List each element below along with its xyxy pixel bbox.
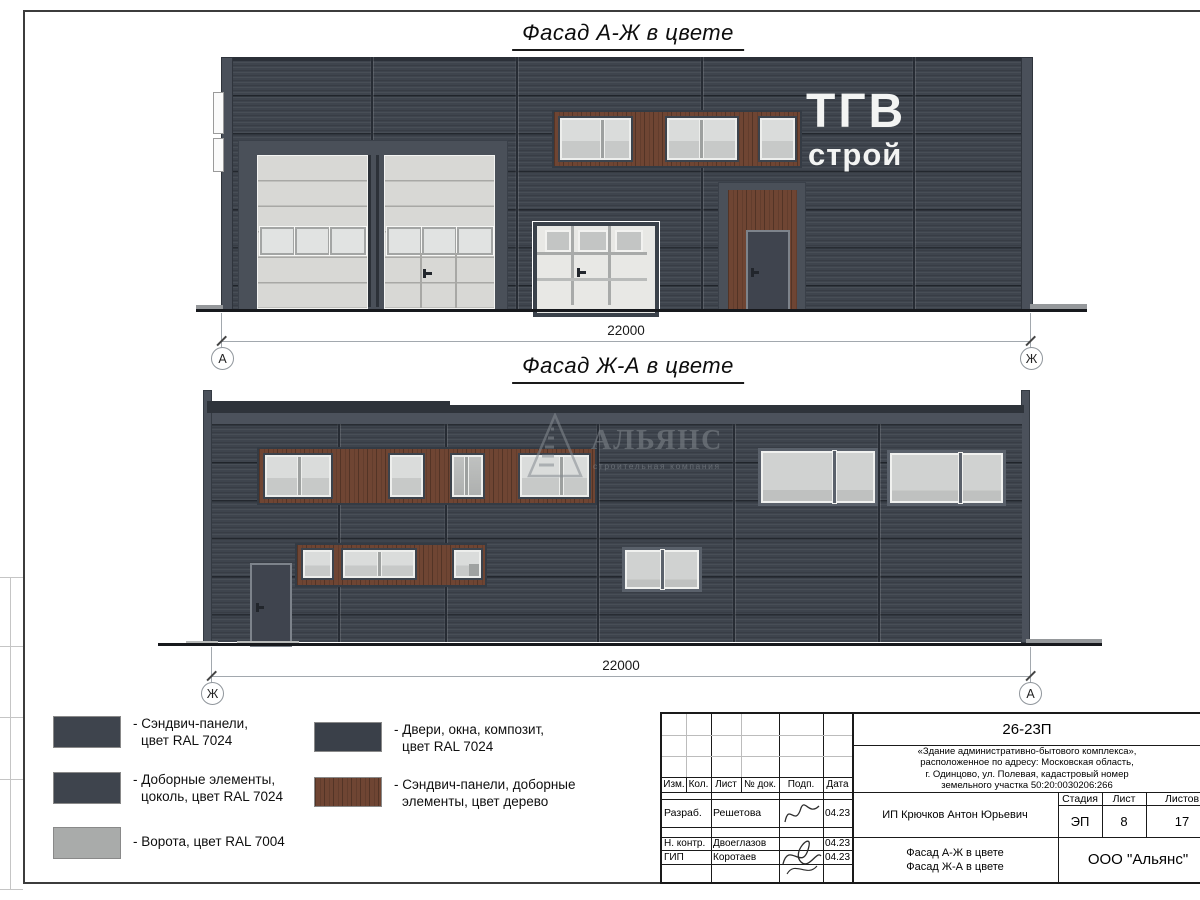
legend-swatch-sandwich bbox=[53, 716, 121, 748]
stamp-name: Коротаев bbox=[713, 850, 779, 864]
ground-line-1 bbox=[196, 309, 1087, 312]
window-mullion bbox=[700, 120, 703, 158]
window bbox=[341, 548, 417, 580]
stamp-name: Решетова bbox=[713, 799, 779, 827]
legend-label: - Сэндвич-панели, цвет RAL 7024 bbox=[133, 715, 248, 749]
window bbox=[301, 548, 334, 580]
gate-divider-groove bbox=[376, 155, 379, 307]
entrance-rail bbox=[537, 278, 647, 281]
extension-line bbox=[211, 647, 212, 687]
window bbox=[758, 116, 797, 162]
stage-value: ЭП bbox=[1058, 805, 1102, 837]
entrance-transom-sash bbox=[545, 230, 571, 252]
stamp-date: 04.23 bbox=[823, 799, 852, 827]
subject-line: Фасад А-Ж в цвете bbox=[906, 846, 1004, 860]
axis-letter: Ж bbox=[1026, 352, 1038, 366]
stamp-line bbox=[711, 714, 712, 882]
tgv-logo-line2: строй bbox=[808, 139, 902, 170]
facade2-dimension: 22000 bbox=[602, 658, 640, 673]
client-name: ИП Крючков Антон Юрьевич bbox=[852, 792, 1058, 837]
stamp-header-data: Дата bbox=[823, 777, 852, 792]
signature bbox=[779, 794, 823, 882]
extension-line bbox=[1030, 647, 1031, 687]
legend-line: элементы, цвет дерево bbox=[394, 794, 548, 809]
window bbox=[665, 116, 739, 162]
stamp-header-list: Лист bbox=[711, 777, 741, 792]
window-mullion bbox=[465, 457, 468, 495]
facade1-panel-seam bbox=[701, 57, 703, 310]
description-line: земельного участка 50:20:0030206:266 bbox=[941, 780, 1113, 792]
legend-line: цвет RAL 7024 bbox=[133, 733, 232, 748]
facade1-dimension: 22000 bbox=[607, 323, 645, 338]
stage-label: Стадия bbox=[1058, 792, 1102, 805]
facade2-door bbox=[250, 563, 292, 647]
stamp-date: 04.23 bbox=[823, 850, 852, 864]
gate-divider-groove bbox=[368, 155, 371, 307]
entry-door bbox=[746, 230, 790, 312]
description-line: «Здание административно-бытового комплек… bbox=[918, 746, 1137, 758]
axis-marker-a: А bbox=[211, 347, 234, 370]
stamp-header-izm: Изм. bbox=[662, 777, 686, 792]
entrance-transom-sash bbox=[578, 230, 608, 252]
margin-column-line bbox=[0, 889, 23, 890]
doc-number: 26-23П bbox=[852, 714, 1200, 745]
facade2-upper-window-band bbox=[257, 447, 597, 505]
window bbox=[388, 453, 425, 499]
facade2-panel-seam bbox=[878, 424, 880, 642]
facade2-panel-seam bbox=[597, 424, 599, 642]
legend-label: - Сэндвич-панели, доборные элементы, цве… bbox=[394, 776, 576, 810]
description-line: г. Одинцово, ул. Полевая, кадастровый но… bbox=[925, 769, 1128, 781]
door-handle bbox=[754, 271, 759, 274]
gate-window bbox=[260, 227, 295, 255]
axis-letter: А bbox=[218, 352, 226, 366]
stamp-line bbox=[662, 864, 852, 865]
entrance-transom-sash bbox=[615, 230, 643, 252]
sheets-label: Листов bbox=[1146, 792, 1200, 805]
window-mullion bbox=[661, 550, 664, 589]
facade1-upper-window-band bbox=[552, 110, 802, 168]
legend-swatch-gates bbox=[53, 827, 121, 859]
legend-label: - Ворота, цвет RAL 7004 bbox=[133, 833, 285, 850]
stamp-date: 04.23 bbox=[823, 837, 852, 850]
stamp-role: Н. контр. bbox=[664, 837, 710, 850]
legend-line: - Сэндвич-панели, bbox=[133, 716, 248, 731]
entrance-mullion bbox=[571, 226, 574, 305]
stamp-name: Двоеглазов bbox=[713, 837, 779, 850]
stamp-line bbox=[662, 735, 852, 736]
window bbox=[887, 450, 1006, 506]
window-mullion bbox=[601, 120, 604, 158]
window bbox=[452, 548, 483, 580]
legend-swatch-dobor bbox=[53, 772, 121, 804]
legend-swatch-doors bbox=[314, 722, 382, 752]
stamp-line bbox=[662, 827, 852, 828]
dimension-line bbox=[211, 676, 1030, 677]
legend-label: - Доборные элементы, цоколь, цвет RAL 70… bbox=[133, 771, 283, 805]
vent-sash bbox=[469, 564, 479, 576]
margin-column-line bbox=[10, 577, 11, 889]
title-block: 26-23П «Здание административно-бытового … bbox=[660, 712, 1200, 884]
stamp-header-kol: Кол. bbox=[686, 777, 711, 792]
stamp-line bbox=[686, 714, 687, 777]
window bbox=[450, 453, 485, 499]
gate-window bbox=[422, 227, 457, 255]
ground-line-2 bbox=[158, 643, 1102, 646]
subject-line: Фасад Ж-А в цвете bbox=[906, 860, 1004, 874]
entrance-mullion bbox=[608, 226, 611, 305]
axis-letter: Ж bbox=[207, 687, 219, 701]
axis-marker-a: А bbox=[1019, 682, 1042, 705]
sheet-subject: Фасад А-Ж в цвете Фасад Ж-А в цвете bbox=[852, 837, 1058, 882]
stamp-line bbox=[662, 756, 852, 757]
downspout bbox=[213, 92, 224, 134]
stamp-header-podp: Подп. bbox=[779, 777, 823, 792]
legend-label: - Двери, окна, композит, цвет RAL 7024 bbox=[394, 721, 544, 755]
gate-window bbox=[457, 227, 493, 255]
gate-window bbox=[387, 227, 422, 255]
legend-line: цвет RAL 7024 bbox=[394, 739, 493, 754]
drawing-sheet: Фасад А-Ж в цвете bbox=[0, 0, 1200, 900]
sectional-gate-1 bbox=[257, 155, 368, 309]
window-mullion bbox=[959, 453, 962, 503]
facade2-corner-pillar-right bbox=[1021, 390, 1030, 643]
window-mullion bbox=[560, 457, 563, 495]
legend-line: - Доборные элементы, bbox=[133, 772, 275, 787]
stamp-header-doc: № док. bbox=[741, 777, 779, 792]
gates-portal-frame bbox=[238, 140, 508, 310]
legend-line: - Двери, окна, композит, bbox=[394, 722, 544, 737]
project-description: «Здание административно-бытового комплек… bbox=[852, 745, 1200, 792]
gate-window bbox=[330, 227, 366, 255]
facade1-corner-right bbox=[1021, 57, 1033, 310]
facade2-title: Фасад Ж-А в цвете bbox=[512, 353, 744, 384]
legend-swatch-wood bbox=[314, 777, 382, 807]
legend-line: цоколь, цвет RAL 7024 bbox=[133, 789, 283, 804]
entrance-door-handle bbox=[580, 271, 586, 274]
facade1-panel-seam bbox=[516, 57, 518, 310]
sheets-value: 17 bbox=[1146, 805, 1200, 837]
dimension-line bbox=[221, 341, 1031, 342]
margin-column-line bbox=[0, 577, 23, 578]
window-mullion bbox=[378, 552, 381, 576]
stamp-role: ГИП bbox=[664, 850, 710, 864]
facade1-panel-seam bbox=[913, 57, 915, 310]
margin-column-line bbox=[0, 646, 23, 647]
company-name: ООО "Альянс" bbox=[1058, 837, 1200, 882]
facade2-lower-window-band bbox=[295, 543, 487, 587]
axis-marker-zh: Ж bbox=[201, 682, 224, 705]
facade1-title: Фасад А-Ж в цвете bbox=[512, 20, 744, 51]
window bbox=[263, 453, 333, 499]
sheet-value: 8 bbox=[1102, 805, 1146, 837]
wicket-door-jamb bbox=[455, 253, 457, 308]
window-mullion bbox=[298, 457, 301, 495]
sectional-gate-2 bbox=[384, 155, 495, 309]
downspout bbox=[213, 138, 224, 172]
window-mullion bbox=[833, 451, 836, 503]
facade2-panel-seam bbox=[733, 424, 735, 642]
sheet-label: Лист bbox=[1102, 792, 1146, 805]
entrance-transom-bar bbox=[537, 252, 647, 255]
facade2-roof-edge-thick bbox=[207, 401, 450, 413]
stamp-line bbox=[741, 714, 742, 777]
window bbox=[518, 453, 591, 499]
margin-column-line bbox=[0, 717, 23, 718]
tgv-logo-line1: ТГВ bbox=[806, 88, 906, 136]
facade1-roof-cap bbox=[221, 57, 1033, 61]
stamp-role: Разраб. bbox=[664, 799, 710, 827]
description-line: расположенное по адресу: Московская обла… bbox=[920, 757, 1133, 769]
window bbox=[758, 448, 878, 506]
axis-letter: А bbox=[1026, 687, 1034, 701]
glazed-entrance bbox=[533, 222, 659, 317]
legend-line: - Ворота, цвет RAL 7004 bbox=[133, 834, 285, 849]
door-handle bbox=[259, 606, 264, 609]
axis-marker-zh: Ж bbox=[1020, 347, 1043, 370]
margin-column-line bbox=[0, 779, 23, 780]
window bbox=[558, 116, 633, 162]
gate-handle bbox=[426, 272, 432, 275]
facade2-roof-edge-thin bbox=[450, 405, 1024, 413]
window bbox=[622, 547, 702, 592]
facade2-corner-pillar-left bbox=[203, 390, 212, 643]
gate-window bbox=[295, 227, 330, 255]
wicket-door-jamb bbox=[420, 253, 422, 308]
legend-line: - Сэндвич-панели, доборные bbox=[394, 777, 576, 792]
